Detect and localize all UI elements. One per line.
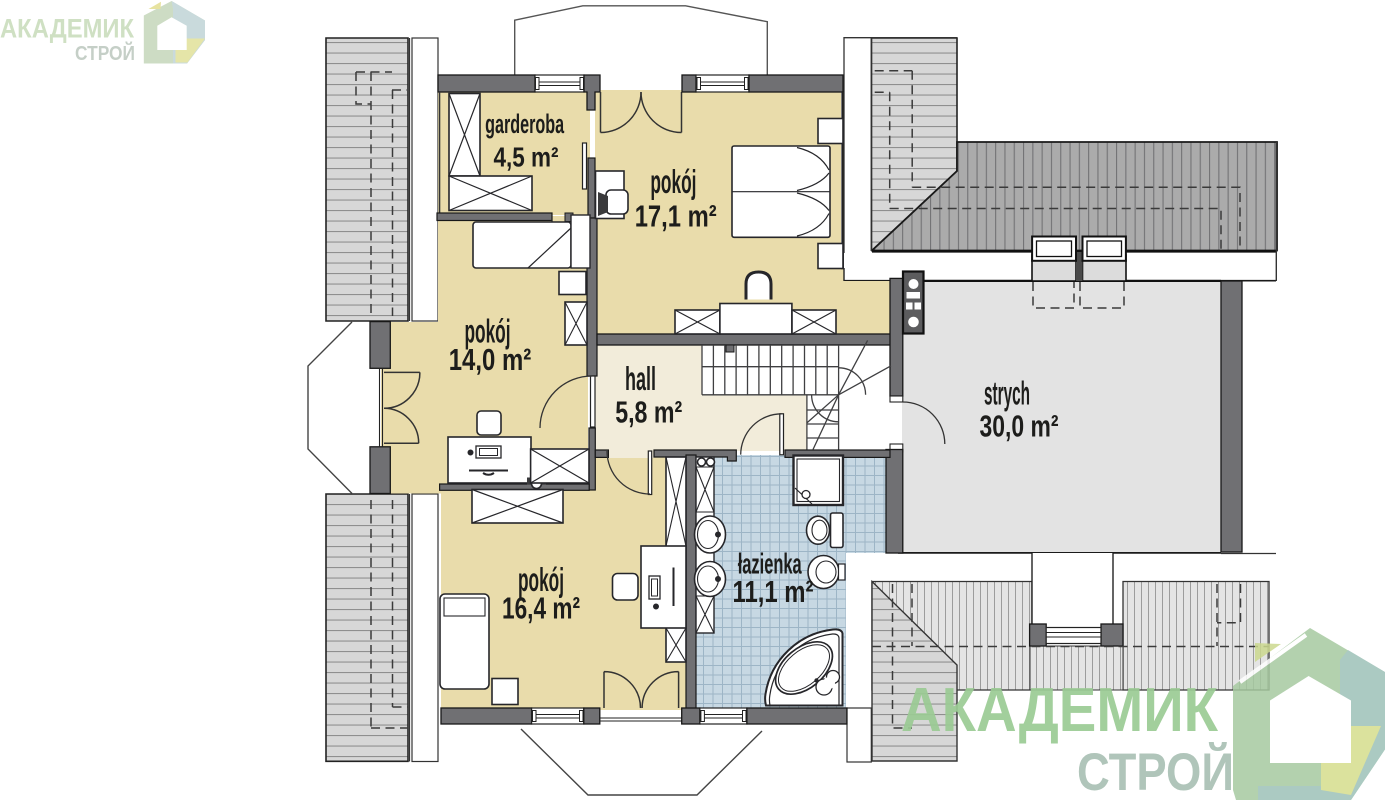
svg-text:АКАДЕМИК: АКАДЕМИК — [0, 14, 134, 44]
svg-text:garderoba: garderoba — [485, 109, 565, 139]
svg-text:strych: strych — [984, 375, 1030, 412]
svg-text:11,1 m²: 11,1 m² — [733, 575, 814, 609]
svg-text:5,8 m²: 5,8 m² — [615, 396, 682, 430]
svg-text:30,0 m²: 30,0 m² — [980, 410, 1059, 444]
svg-text:hall: hall — [625, 360, 656, 397]
svg-text:17,1 m²: 17,1 m² — [635, 200, 717, 234]
svg-text:16,4 m²: 16,4 m² — [502, 592, 580, 626]
svg-text:14,0 m²: 14,0 m² — [449, 343, 532, 377]
svg-text:СТРОЙ: СТРОЙ — [1077, 741, 1234, 800]
svg-text:СТРОЙ: СТРОЙ — [75, 41, 135, 65]
svg-text:АКАДЕМИК: АКАДЕМИК — [901, 676, 1218, 745]
svg-text:4,5 m²: 4,5 m² — [494, 142, 559, 173]
svg-text:pokój: pokój — [650, 163, 696, 200]
